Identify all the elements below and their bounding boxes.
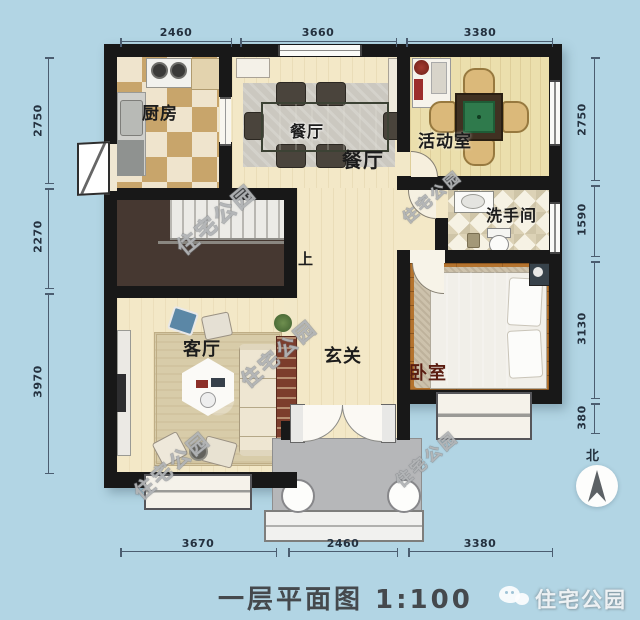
dim-line-top-2 [240, 41, 397, 42]
dim-bottom-3: 3380 [458, 537, 502, 550]
dim-line-left-3 [48, 293, 49, 474]
brand-name: 住宅公园 [535, 584, 627, 614]
bedroom-door-opening [410, 250, 445, 263]
bed-duvet [446, 272, 510, 387]
bed-pillow [507, 329, 543, 379]
activity-chair [463, 68, 495, 95]
dim-line-bottom-3 [408, 551, 553, 552]
stairs-up-label: 上 [298, 252, 314, 267]
compass-north-label: 北 [586, 450, 600, 463]
wall-bathroom-bottom [445, 250, 562, 263]
dim-line-bottom-1 [120, 551, 277, 552]
bathroom-label: 洗手间 [486, 208, 537, 224]
table-decor [196, 380, 208, 388]
wall-living-top [104, 286, 297, 298]
wall-kitchen-dining-upper [219, 44, 232, 97]
dim-line-left-1 [48, 57, 49, 184]
entry-door-post [381, 404, 396, 443]
dining-label: 餐厅 [342, 150, 384, 170]
dim-bottom-2: 2460 [321, 537, 365, 550]
dim-line-left-2 [48, 188, 49, 289]
stove-burner [170, 62, 187, 79]
dim-top-2: 3660 [296, 26, 340, 39]
kitchen-sink [120, 100, 143, 136]
wall-bathroom-left [435, 218, 448, 252]
bedroom-label: 卧室 [409, 365, 447, 383]
dim-line-top-1 [120, 41, 232, 42]
living-room-label: 客厅 [183, 341, 221, 359]
dim-right-4: 380 [576, 396, 589, 440]
exterior-wall-left [104, 44, 117, 488]
fridge [191, 58, 220, 90]
dining-table-label: 餐厅 [290, 124, 324, 140]
dim-left-3: 3970 [32, 360, 45, 404]
wechat-icon-eye [511, 591, 514, 594]
tv [117, 374, 126, 412]
dim-left-1: 2750 [32, 99, 45, 143]
hall-foyer-floor [297, 188, 397, 440]
dim-line-right-1 [594, 57, 595, 181]
cabinet-decor [431, 62, 447, 94]
wall-heater-dial [533, 267, 543, 277]
dim-top-3: 3380 [458, 26, 502, 39]
kitchen-label: 厨房 [142, 106, 178, 123]
stove-burner [151, 62, 168, 79]
table-decor [211, 378, 225, 387]
dim-left-2: 2270 [32, 215, 45, 259]
window-bathroom-right [550, 202, 560, 254]
dining-table [261, 102, 389, 152]
dim-line-right-3 [594, 261, 595, 399]
table-plate [200, 392, 216, 408]
kitchen-pass-through [220, 97, 231, 146]
dim-line-top-3 [406, 41, 553, 42]
wall-dining-activity [397, 44, 410, 152]
dim-line-bottom-2 [288, 551, 398, 552]
foyer-label: 玄关 [324, 348, 362, 366]
dining-sideboard [236, 58, 270, 78]
wine-rack [414, 79, 423, 100]
bathroom-sink-basin [461, 194, 485, 209]
activity-room-label: 活动室 [418, 134, 472, 151]
wechat-icon-small-bubble [515, 593, 529, 605]
activity-chair [502, 101, 529, 133]
wechat-icon-eye [505, 591, 508, 594]
kitchen-door-leaf [77, 141, 110, 196]
dim-line-right-2 [594, 185, 595, 257]
dim-line-right-4 [594, 403, 595, 434]
floor-plan-canvas: 厨房 餐厅 餐厅 活动室 洗手间 卧室 客厅 玄关 上 住宅公园 住宅公园 住宅… [0, 0, 640, 620]
activity-chair [429, 101, 456, 133]
dim-right-3: 3130 [576, 307, 589, 351]
wall-bedroom-left [397, 250, 410, 440]
mahjong-table-dot [477, 115, 481, 119]
wall-kitchen-bottom [104, 188, 297, 200]
dim-bottom-1: 3670 [176, 537, 220, 550]
wall-bathroom-top [397, 176, 562, 190]
floor-drain [467, 233, 480, 248]
wall-stair-hall [284, 197, 297, 298]
plant [414, 60, 429, 75]
kitchen-cabinet [117, 140, 144, 176]
window-dining-top [278, 45, 362, 56]
dim-right-1: 2750 [576, 98, 589, 142]
dim-right-2: 1590 [576, 198, 589, 242]
dim-top-1: 2460 [154, 26, 198, 39]
drawing-title: 一层平面图 1:100 [208, 579, 483, 620]
window-activity-right [550, 80, 560, 146]
